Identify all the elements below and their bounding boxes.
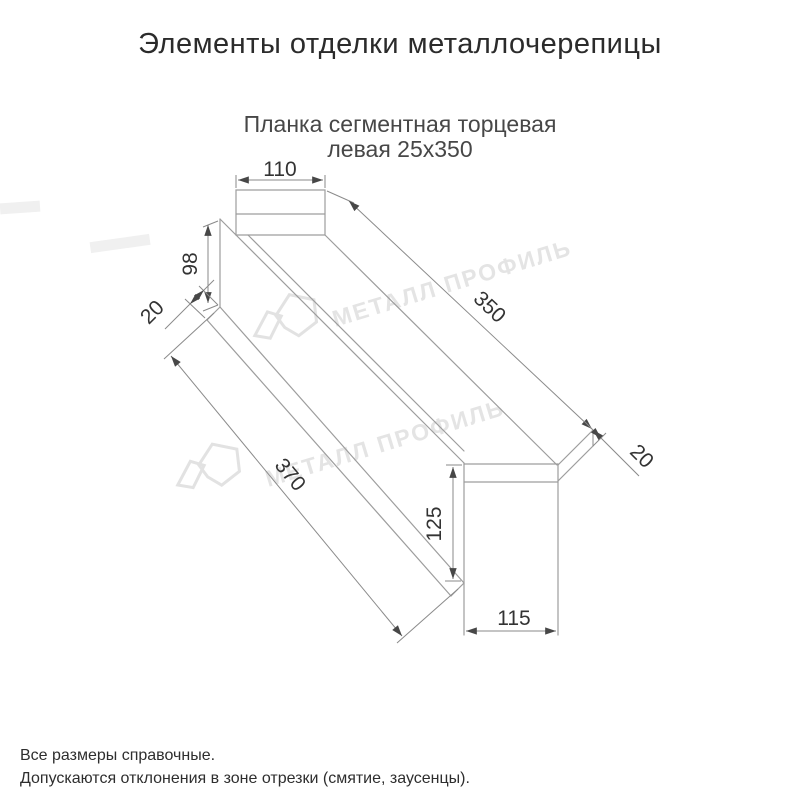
metal-profil-logo-icon	[169, 438, 245, 498]
dim-label-110: 110	[263, 158, 296, 181]
far-flap-top-edge	[558, 430, 593, 465]
edge-top-near	[220, 219, 464, 463]
watermark-text: МЕТАЛЛ ПРОФИЛЬ	[329, 234, 575, 332]
dim-label-350: 350	[469, 287, 510, 328]
catalog-page: Элементы отделки металлочерепицы Планка …	[0, 0, 800, 800]
dim-label-20-left: 20	[136, 296, 169, 329]
brand-watermark-upper: МЕТАЛЛ ПРОФИЛЬ	[246, 234, 574, 348]
dimension-labels: 110 98 20 350 20 370 125 115	[136, 158, 658, 630]
dim-label-125: 125	[423, 506, 446, 541]
footnotes: Все размеры справочные. Допускаются откл…	[20, 744, 470, 790]
metal-profil-logo-icon	[246, 288, 322, 348]
footnote-line2: Допускаются отклонения в зоне отрезки (с…	[20, 767, 470, 790]
dim-20-right	[584, 421, 639, 476]
edge-top-hem	[248, 235, 464, 451]
dim-label-20-right: 20	[625, 440, 658, 473]
dim-label-98: 98	[179, 252, 202, 275]
watermark-fragment-left	[0, 201, 151, 253]
near-end-flange-section	[236, 190, 325, 235]
dim-20-left	[165, 280, 218, 329]
brand-watermark-lower: МЕТАЛЛ ПРОФИЛЬ	[169, 394, 508, 497]
far-flap-bottom-edge	[558, 446, 593, 481]
edge-bottom-fold	[207, 320, 451, 596]
technical-drawing: МЕТАЛЛ ПРОФИЛЬ МЕТАЛЛ ПРОФИЛЬ	[0, 0, 800, 800]
dim-label-115: 115	[497, 607, 530, 630]
footnote-line1: Все размеры справочные.	[20, 744, 470, 767]
